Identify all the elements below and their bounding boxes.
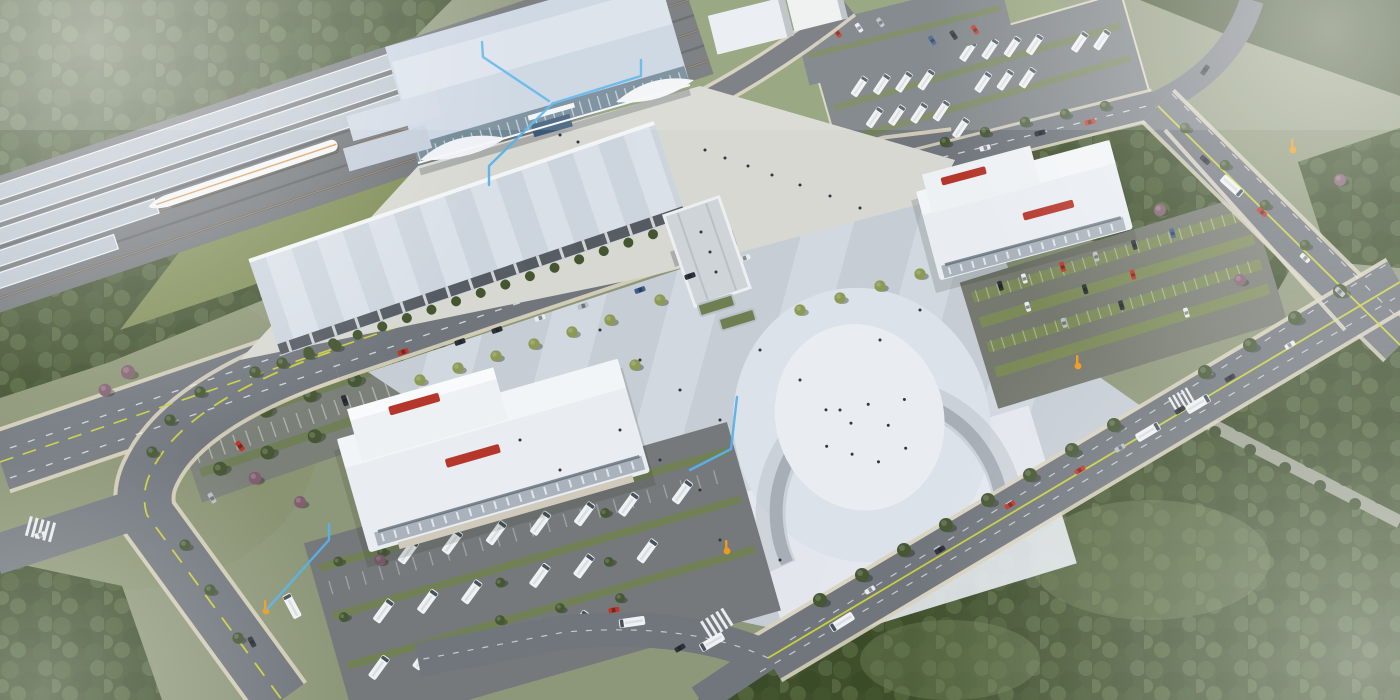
station-masterplan-rendering: [0, 0, 1400, 700]
rendering-canvas: [0, 0, 1400, 700]
